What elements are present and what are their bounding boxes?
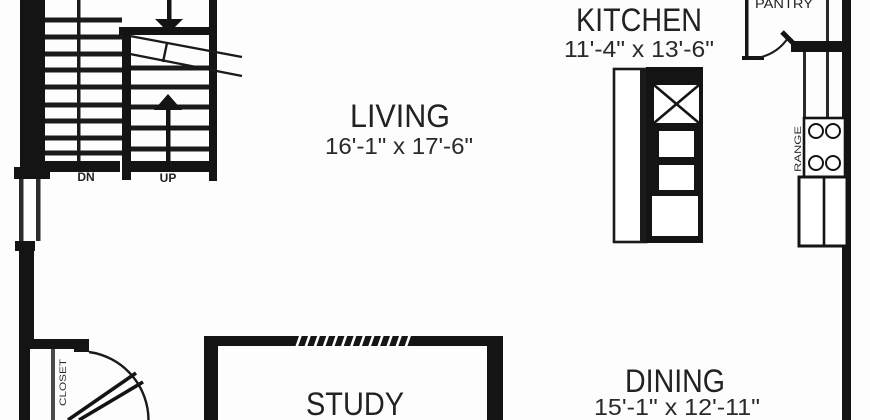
svg-text:KITCHEN: KITCHEN bbox=[576, 2, 702, 38]
svg-text:PANTRY: PANTRY bbox=[755, 0, 814, 11]
svg-text:LIVING: LIVING bbox=[350, 98, 450, 134]
svg-text:11'-4" x 13'-6": 11'-4" x 13'-6" bbox=[564, 36, 714, 62]
svg-text:UP: UP bbox=[160, 171, 177, 185]
svg-text:RANGE: RANGE bbox=[793, 126, 803, 172]
svg-text:STUDY: STUDY bbox=[306, 386, 404, 420]
svg-text:CLOSET: CLOSET bbox=[58, 358, 68, 406]
svg-text:16'-1" x 17'-6": 16'-1" x 17'-6" bbox=[325, 133, 473, 159]
svg-text:DN: DN bbox=[77, 170, 94, 184]
svg-text:15'-1" x 12'-11": 15'-1" x 12'-11" bbox=[594, 394, 760, 420]
